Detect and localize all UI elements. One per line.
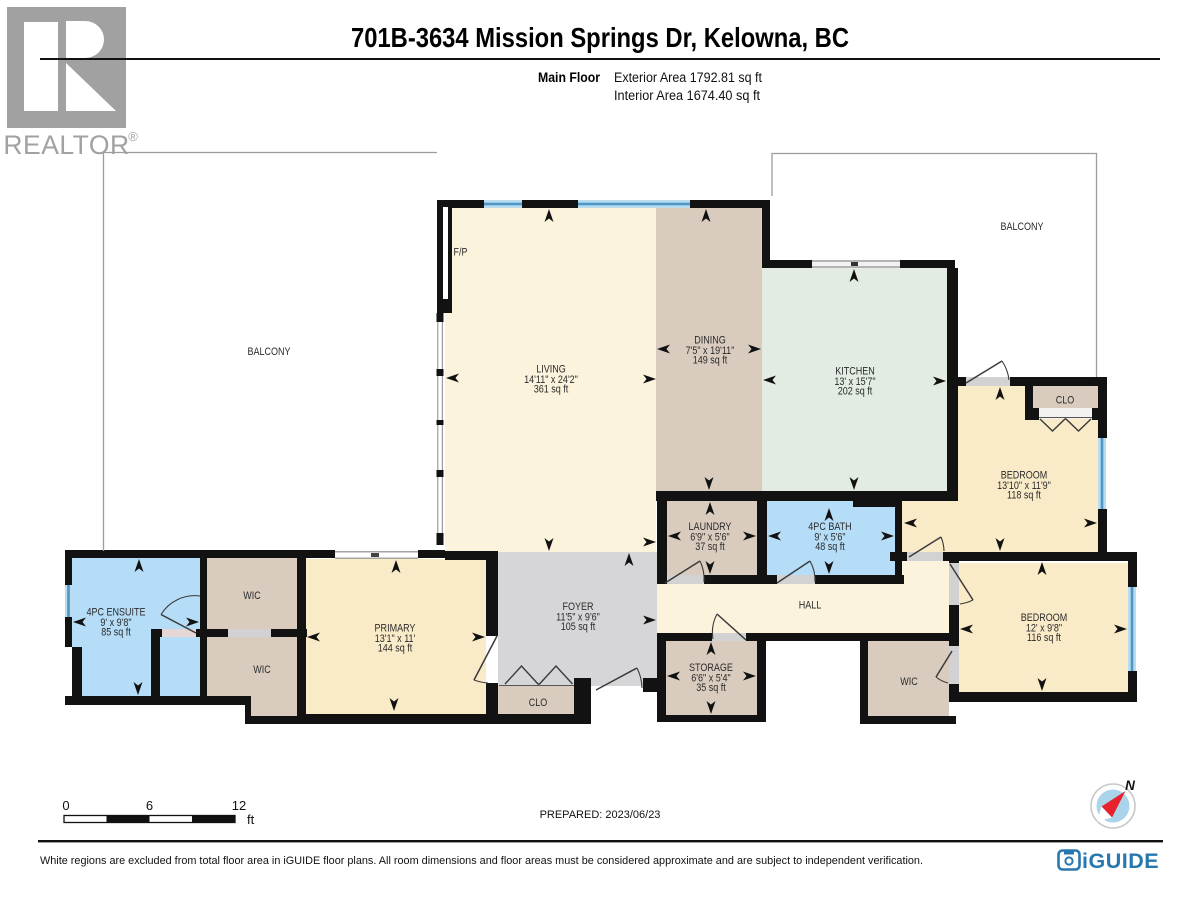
svg-text:48 sq ft: 48 sq ft bbox=[815, 541, 845, 553]
svg-text:WIC: WIC bbox=[243, 590, 261, 602]
svg-text:®: ® bbox=[128, 129, 138, 144]
svg-text:6: 6 bbox=[146, 798, 153, 813]
svg-text:Exterior Area 1792.81 sq ft: Exterior Area 1792.81 sq ft bbox=[614, 70, 762, 85]
svg-text:12: 12 bbox=[232, 798, 246, 813]
svg-text:118 sq ft: 118 sq ft bbox=[1007, 489, 1041, 501]
svg-text:REALTOR: REALTOR bbox=[3, 130, 129, 160]
svg-text:CLO: CLO bbox=[529, 697, 548, 709]
svg-text:WIC: WIC bbox=[253, 664, 271, 676]
svg-text:202 sq ft: 202 sq ft bbox=[838, 385, 873, 397]
svg-text:Main Floor: Main Floor bbox=[538, 70, 601, 85]
svg-text:361 sq ft: 361 sq ft bbox=[534, 383, 569, 395]
svg-text:0: 0 bbox=[62, 798, 69, 813]
svg-text:Interior Area 1674.40 sq ft: Interior Area 1674.40 sq ft bbox=[614, 88, 760, 103]
svg-text:701B-3634 Mission Springs Dr,: 701B-3634 Mission Springs Dr, Kelowna, B… bbox=[351, 22, 849, 53]
svg-text:White regions are excluded fro: White regions are excluded from total fl… bbox=[40, 855, 923, 867]
svg-text:PREPARED: 2023/06/23: PREPARED: 2023/06/23 bbox=[540, 809, 661, 821]
svg-text:BALCONY: BALCONY bbox=[1000, 221, 1044, 233]
svg-text:37 sq ft: 37 sq ft bbox=[695, 541, 725, 553]
svg-text:HALL: HALL bbox=[799, 600, 822, 612]
svg-text:149 sq ft: 149 sq ft bbox=[693, 354, 728, 366]
svg-text:144 sq ft: 144 sq ft bbox=[378, 642, 413, 654]
svg-text:iGUIDE: iGUIDE bbox=[1082, 849, 1159, 873]
svg-text:35 sq ft: 35 sq ft bbox=[696, 682, 726, 694]
svg-text:ft: ft bbox=[247, 812, 255, 827]
svg-text:BALCONY: BALCONY bbox=[247, 346, 291, 358]
svg-text:N: N bbox=[1125, 778, 1135, 793]
svg-text:85 sq ft: 85 sq ft bbox=[101, 626, 131, 638]
svg-text:WIC: WIC bbox=[900, 676, 918, 688]
svg-text:105 sq ft: 105 sq ft bbox=[561, 621, 596, 633]
svg-text:CLO: CLO bbox=[1056, 395, 1075, 407]
svg-text:116 sq ft: 116 sq ft bbox=[1027, 632, 1061, 644]
svg-text:F/P: F/P bbox=[454, 247, 468, 259]
